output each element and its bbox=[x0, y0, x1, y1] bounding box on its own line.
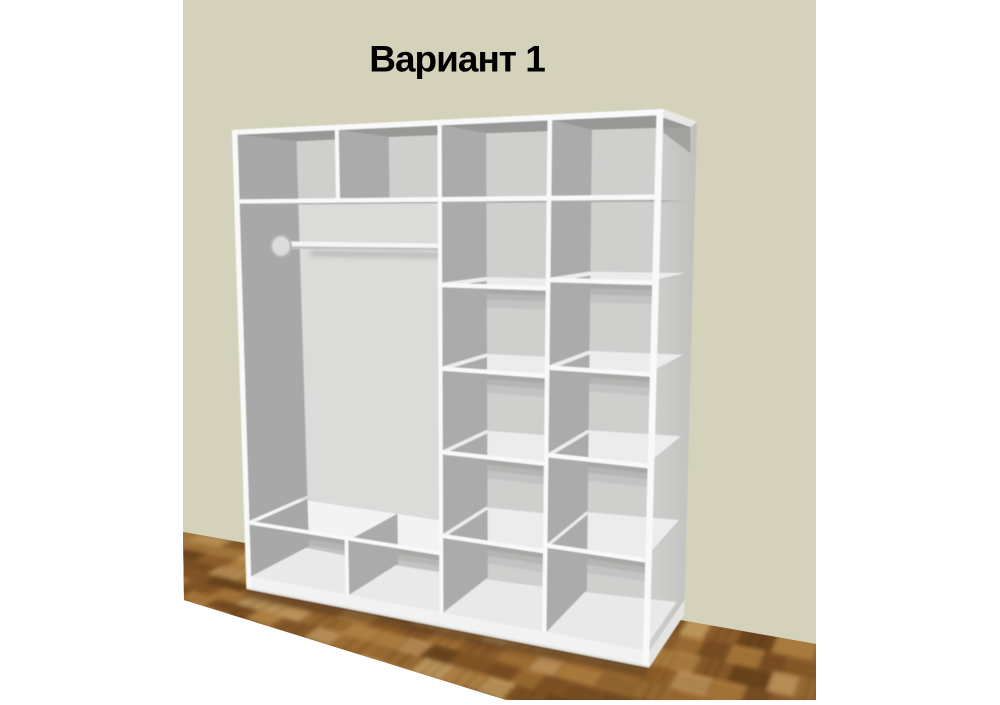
svg-text:Вариант 1: Вариант 1 bbox=[369, 39, 545, 80]
